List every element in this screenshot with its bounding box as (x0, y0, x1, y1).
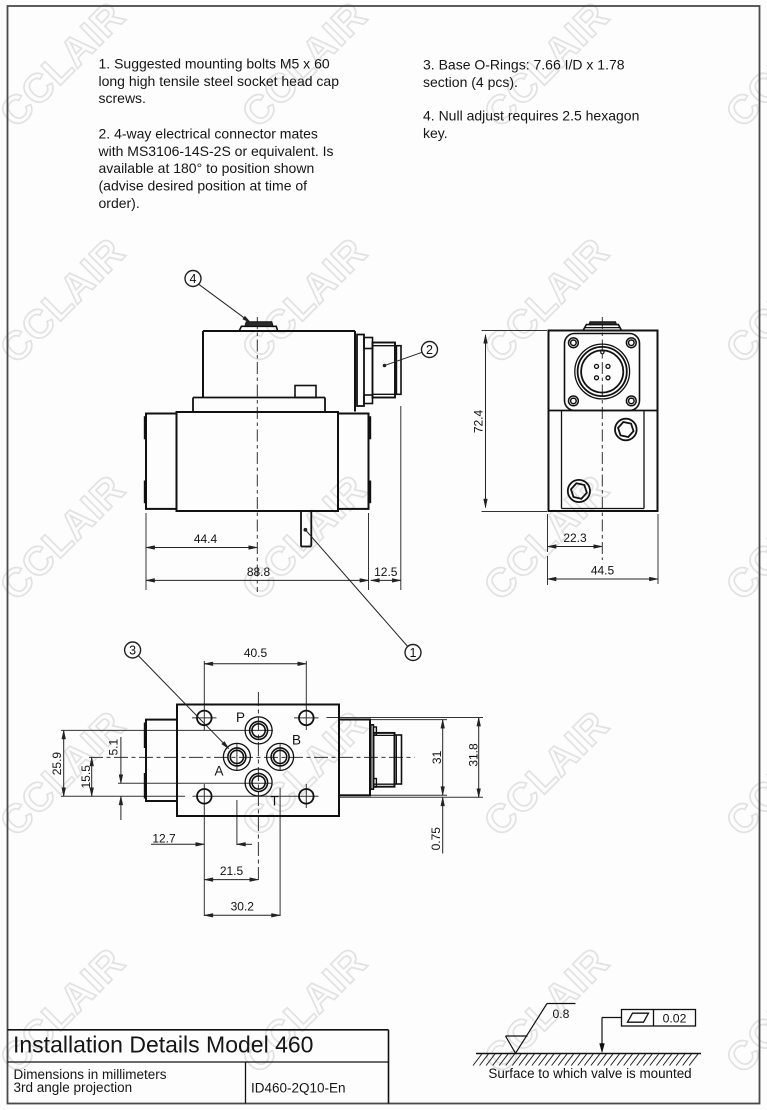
svg-text:44.4: 44.4 (194, 532, 218, 546)
svg-text:available at 180° to position: available at 180° to position shown (99, 160, 315, 176)
svg-text:T: T (270, 794, 278, 809)
svg-text:25.9: 25.9 (50, 752, 64, 776)
svg-text:22.3: 22.3 (563, 531, 587, 545)
svg-text:key.: key. (423, 125, 448, 141)
svg-text:31.8: 31.8 (466, 743, 480, 767)
svg-text:B: B (292, 733, 301, 748)
svg-text:1: 1 (410, 646, 417, 660)
svg-text:ID460-2Q10-En: ID460-2Q10-En (251, 1080, 346, 1095)
svg-text:12.5: 12.5 (374, 565, 398, 579)
svg-text:with MS3106-14S-2S or equivale: with MS3106-14S-2S or equivalent. Is (98, 143, 334, 159)
svg-text:31: 31 (430, 750, 444, 764)
svg-text:section (4 pcs).: section (4 pcs). (423, 74, 518, 90)
svg-text:screws.: screws. (99, 90, 146, 106)
svg-text:0.8: 0.8 (553, 1007, 570, 1021)
svg-text:long high tensile steel socket: long high tensile steel socket head cap (99, 73, 340, 89)
svg-text:5.1: 5.1 (106, 739, 120, 756)
svg-text:order).: order). (99, 195, 140, 211)
svg-text:1. Suggested mounting bolts M5: 1. Suggested mounting bolts M5 x 60 (99, 56, 330, 72)
svg-text:40.5: 40.5 (244, 646, 268, 660)
svg-text:3: 3 (129, 643, 136, 657)
svg-text:P: P (236, 710, 245, 725)
svg-text:Installation Details Model 460: Installation Details Model 460 (13, 1031, 313, 1057)
svg-text:A: A (214, 764, 223, 779)
svg-text:Surface to which valve is moun: Surface to which valve is mounted (488, 1066, 691, 1081)
svg-text:(advise desired position at ti: (advise desired position at time of (99, 178, 308, 194)
svg-text:12.7: 12.7 (152, 832, 176, 846)
svg-text:0.75: 0.75 (429, 827, 443, 851)
svg-text:2: 2 (426, 343, 433, 357)
svg-text:72.4: 72.4 (472, 409, 486, 433)
svg-text:15.5: 15.5 (79, 765, 93, 789)
svg-text:3. Base O-Rings: 7.66 I/D x 1.: 3. Base O-Rings: 7.66 I/D x 1.78 (423, 57, 625, 73)
svg-text:0.02: 0.02 (663, 1011, 687, 1025)
svg-text:4: 4 (190, 272, 197, 286)
svg-text:88.8: 88.8 (247, 565, 271, 579)
svg-text:2. 4-way electrical connector: 2. 4-way electrical connector mates (99, 126, 318, 142)
svg-text:4. Null adjust requires 2.5 he: 4. Null adjust requires 2.5 hexagon (423, 108, 639, 124)
svg-text:30.2: 30.2 (231, 900, 255, 914)
svg-text:21.5: 21.5 (220, 864, 244, 878)
svg-text:3rd angle projection: 3rd angle projection (14, 1080, 133, 1095)
svg-text:44.5: 44.5 (591, 563, 615, 577)
